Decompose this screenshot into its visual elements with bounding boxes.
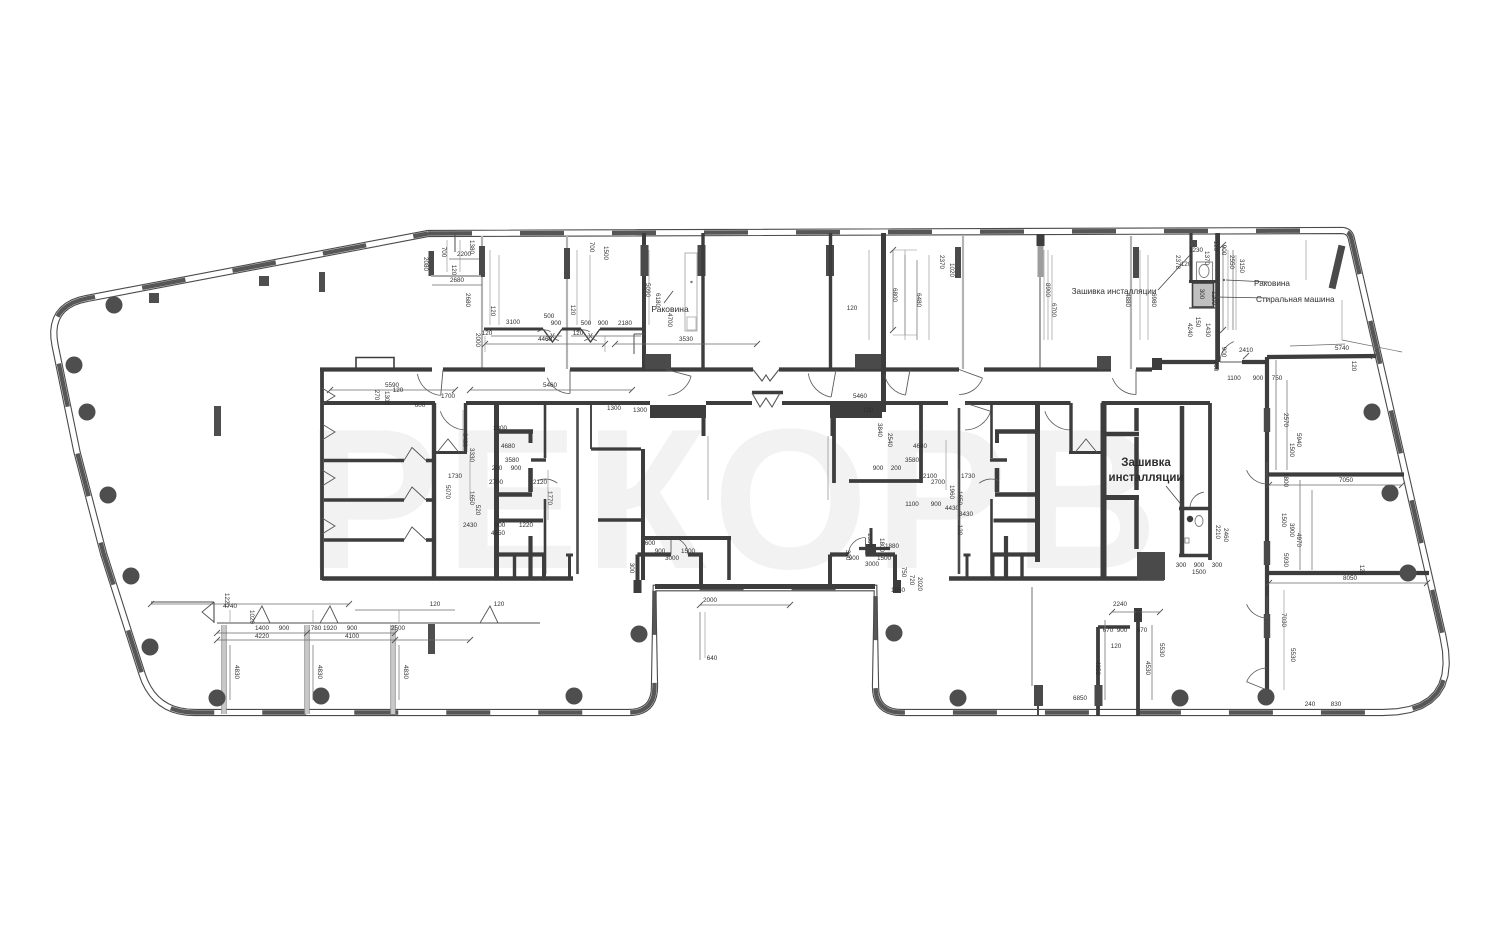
svg-text:1100: 1100 bbox=[905, 501, 919, 508]
svg-text:1700: 1700 bbox=[441, 393, 456, 400]
svg-text:2080: 2080 bbox=[422, 257, 429, 272]
svg-text:1500: 1500 bbox=[1288, 443, 1295, 458]
svg-text:1730: 1730 bbox=[448, 473, 463, 480]
svg-text:900: 900 bbox=[347, 625, 358, 632]
svg-text:240: 240 bbox=[1305, 701, 1316, 708]
svg-text:7030: 7030 bbox=[1280, 613, 1287, 628]
svg-text:1960: 1960 bbox=[948, 485, 955, 500]
svg-text:1770: 1770 bbox=[546, 491, 553, 506]
svg-text:500: 500 bbox=[544, 313, 555, 320]
svg-text:120: 120 bbox=[1212, 241, 1219, 252]
svg-text:4220: 4220 bbox=[255, 633, 270, 640]
svg-text:900: 900 bbox=[1194, 562, 1205, 569]
svg-text:2540: 2540 bbox=[886, 433, 893, 448]
svg-text:520: 520 bbox=[474, 505, 481, 516]
svg-text:830: 830 bbox=[1331, 701, 1342, 708]
svg-text:4460: 4460 bbox=[538, 336, 553, 343]
svg-text:4550: 4550 bbox=[491, 530, 506, 537]
svg-text:5530: 5530 bbox=[1158, 643, 1165, 658]
svg-text:Стиральная машина: Стиральная машина bbox=[1256, 295, 1335, 304]
svg-text:4240: 4240 bbox=[1186, 323, 1193, 338]
svg-text:2000: 2000 bbox=[703, 597, 718, 604]
svg-text:120: 120 bbox=[1111, 643, 1122, 650]
svg-text:3430: 3430 bbox=[959, 511, 974, 518]
svg-text:1300: 1300 bbox=[383, 391, 390, 406]
svg-text:1220: 1220 bbox=[519, 522, 534, 529]
svg-text:3530: 3530 bbox=[679, 336, 694, 343]
svg-text:120: 120 bbox=[956, 525, 963, 536]
svg-text:900: 900 bbox=[598, 320, 609, 327]
svg-text:120: 120 bbox=[863, 407, 874, 414]
svg-text:1500: 1500 bbox=[1280, 513, 1287, 528]
svg-text:5740: 5740 bbox=[1335, 345, 1350, 352]
svg-text:8050: 8050 bbox=[1343, 575, 1358, 582]
svg-text:1500: 1500 bbox=[1192, 569, 1207, 576]
svg-text:2680: 2680 bbox=[464, 293, 471, 308]
svg-text:1380: 1380 bbox=[468, 240, 475, 255]
svg-text:120: 120 bbox=[430, 601, 441, 608]
svg-text:6800: 6800 bbox=[891, 288, 898, 303]
svg-text:600: 600 bbox=[415, 402, 426, 409]
svg-text:1200: 1200 bbox=[1210, 291, 1217, 306]
svg-text:1370: 1370 bbox=[1203, 251, 1210, 266]
svg-text:200: 200 bbox=[492, 465, 503, 472]
svg-text:4650: 4650 bbox=[1094, 661, 1101, 676]
svg-text:300: 300 bbox=[628, 563, 635, 574]
svg-text:1300: 1300 bbox=[866, 533, 873, 548]
svg-text:150: 150 bbox=[1194, 317, 1201, 328]
svg-text:4830: 4830 bbox=[316, 665, 323, 680]
svg-text:120: 120 bbox=[482, 330, 493, 337]
svg-text:200: 200 bbox=[891, 465, 902, 472]
svg-text:2700: 2700 bbox=[489, 479, 504, 486]
svg-text:900: 900 bbox=[873, 465, 884, 472]
svg-text:2550: 2550 bbox=[1228, 255, 1235, 270]
svg-text:2020: 2020 bbox=[916, 577, 923, 592]
svg-text:1500: 1500 bbox=[877, 555, 892, 562]
svg-text:5940: 5940 bbox=[1295, 433, 1302, 448]
svg-text:750: 750 bbox=[1272, 375, 1283, 382]
svg-text:1100: 1100 bbox=[1227, 375, 1241, 382]
svg-text:1020: 1020 bbox=[948, 263, 955, 278]
svg-text:Зашивка инсталляции: Зашивка инсталляции bbox=[1072, 287, 1157, 296]
svg-text:3430: 3430 bbox=[461, 433, 468, 448]
svg-text:900: 900 bbox=[655, 548, 666, 555]
svg-text:4680: 4680 bbox=[501, 443, 516, 450]
svg-text:120: 120 bbox=[450, 265, 457, 276]
svg-text:1220: 1220 bbox=[223, 593, 230, 608]
svg-text:1400: 1400 bbox=[255, 625, 270, 632]
svg-text:1650: 1650 bbox=[956, 491, 963, 506]
svg-text:6850: 6850 bbox=[1073, 695, 1088, 702]
svg-text:820: 820 bbox=[1134, 610, 1141, 621]
svg-text:120: 120 bbox=[1181, 261, 1192, 268]
svg-text:700: 700 bbox=[1212, 361, 1219, 372]
svg-text:4530: 4530 bbox=[1144, 661, 1151, 676]
svg-text:1430: 1430 bbox=[1204, 323, 1211, 338]
svg-text:300: 300 bbox=[1212, 562, 1223, 569]
svg-text:Раковина: Раковина bbox=[1254, 279, 1290, 288]
svg-text:1050: 1050 bbox=[891, 587, 906, 594]
svg-text:2000: 2000 bbox=[474, 333, 481, 348]
svg-text:900: 900 bbox=[511, 465, 522, 472]
svg-text:4100: 4100 bbox=[345, 633, 360, 640]
svg-text:900: 900 bbox=[1117, 627, 1128, 634]
svg-text:1230: 1230 bbox=[1189, 247, 1204, 254]
svg-text:120: 120 bbox=[1350, 361, 1357, 372]
svg-text:300: 300 bbox=[1198, 289, 1205, 300]
svg-text:2500: 2500 bbox=[391, 625, 406, 632]
svg-text:1730: 1730 bbox=[961, 473, 976, 480]
svg-text:3330: 3330 bbox=[468, 448, 475, 463]
svg-text:2680: 2680 bbox=[450, 277, 465, 284]
svg-text:2410: 2410 bbox=[1239, 347, 1254, 354]
svg-text:120: 120 bbox=[573, 330, 584, 337]
svg-text:2430: 2430 bbox=[463, 522, 478, 529]
svg-text:700: 700 bbox=[588, 242, 595, 253]
svg-text:5530: 5530 bbox=[1289, 648, 1296, 663]
svg-text:5090: 5090 bbox=[644, 283, 651, 298]
svg-text:2370: 2370 bbox=[938, 255, 945, 270]
svg-text:780: 780 bbox=[311, 625, 322, 632]
svg-text:120: 120 bbox=[1358, 565, 1365, 576]
svg-text:2240: 2240 bbox=[1113, 601, 1128, 608]
svg-text:4830: 4830 bbox=[233, 665, 240, 680]
svg-text:6700: 6700 bbox=[1050, 303, 1057, 318]
svg-text:1800: 1800 bbox=[1282, 473, 1289, 488]
svg-text:300: 300 bbox=[1176, 562, 1187, 569]
svg-text:5460: 5460 bbox=[853, 393, 868, 400]
svg-text:120: 120 bbox=[847, 305, 858, 312]
svg-text:640: 640 bbox=[707, 655, 718, 662]
svg-text:5070: 5070 bbox=[444, 485, 451, 500]
svg-text:3900: 3900 bbox=[1288, 523, 1295, 538]
svg-text:750: 750 bbox=[900, 567, 907, 578]
svg-text:720: 720 bbox=[908, 575, 915, 586]
svg-text:2180: 2180 bbox=[618, 320, 633, 327]
svg-text:6480: 6480 bbox=[915, 293, 922, 308]
svg-text:1500: 1500 bbox=[602, 246, 609, 261]
svg-text:1920: 1920 bbox=[323, 625, 338, 632]
svg-text:1500: 1500 bbox=[681, 548, 696, 555]
svg-text:5930: 5930 bbox=[1282, 553, 1289, 568]
svg-text:120: 120 bbox=[393, 387, 404, 394]
svg-text:4680: 4680 bbox=[913, 443, 928, 450]
svg-text:600: 600 bbox=[645, 540, 656, 547]
svg-text:2210: 2210 bbox=[1214, 525, 1221, 540]
svg-text:4430: 4430 bbox=[945, 505, 960, 512]
svg-text:Раковина: Раковина bbox=[651, 304, 689, 314]
svg-text:3580: 3580 bbox=[505, 457, 520, 464]
svg-text:3100: 3100 bbox=[506, 319, 521, 326]
svg-text:4700: 4700 bbox=[666, 313, 673, 328]
svg-text:900: 900 bbox=[849, 555, 860, 562]
svg-text:900: 900 bbox=[279, 625, 290, 632]
svg-text:700: 700 bbox=[440, 247, 447, 258]
svg-text:3580: 3580 bbox=[905, 457, 920, 464]
svg-text:670: 670 bbox=[1137, 627, 1148, 634]
svg-text:1800: 1800 bbox=[878, 538, 885, 553]
svg-text:2570: 2570 bbox=[1282, 413, 1289, 428]
svg-text:2378: 2378 bbox=[1174, 255, 1181, 270]
svg-text:900: 900 bbox=[1253, 375, 1264, 382]
svg-text:2700: 2700 bbox=[931, 479, 946, 486]
svg-text:7050: 7050 bbox=[1339, 477, 1354, 484]
svg-text:1880: 1880 bbox=[885, 543, 900, 550]
svg-text:270: 270 bbox=[373, 390, 380, 401]
svg-text:3000: 3000 bbox=[665, 555, 680, 562]
svg-text:5460: 5460 bbox=[543, 382, 558, 389]
svg-text:1300: 1300 bbox=[493, 425, 508, 432]
svg-text:2120: 2120 bbox=[533, 479, 548, 486]
svg-text:4830: 4830 bbox=[402, 665, 409, 680]
svg-text:инсталляции: инсталляции bbox=[1109, 472, 1184, 484]
svg-text:900: 900 bbox=[1220, 347, 1227, 358]
svg-text:1300: 1300 bbox=[607, 405, 622, 412]
svg-text:1300: 1300 bbox=[633, 407, 648, 414]
svg-text:3000: 3000 bbox=[865, 561, 880, 568]
svg-text:900: 900 bbox=[551, 320, 562, 327]
svg-text:900: 900 bbox=[495, 522, 506, 529]
svg-text:120: 120 bbox=[494, 601, 505, 608]
svg-text:120: 120 bbox=[569, 305, 576, 316]
svg-text:1650: 1650 bbox=[468, 491, 475, 506]
svg-text:3150: 3150 bbox=[1238, 259, 1245, 274]
svg-text:2460: 2460 bbox=[1222, 528, 1229, 543]
svg-text:4970: 4970 bbox=[1295, 533, 1302, 548]
svg-text:1020: 1020 bbox=[248, 610, 255, 625]
svg-text:3840: 3840 bbox=[876, 423, 883, 438]
svg-text:Зашивка: Зашивка bbox=[1121, 457, 1171, 469]
svg-text:900: 900 bbox=[931, 501, 942, 508]
svg-text:8900: 8900 bbox=[1044, 283, 1051, 298]
svg-text:670: 670 bbox=[1103, 627, 1114, 634]
